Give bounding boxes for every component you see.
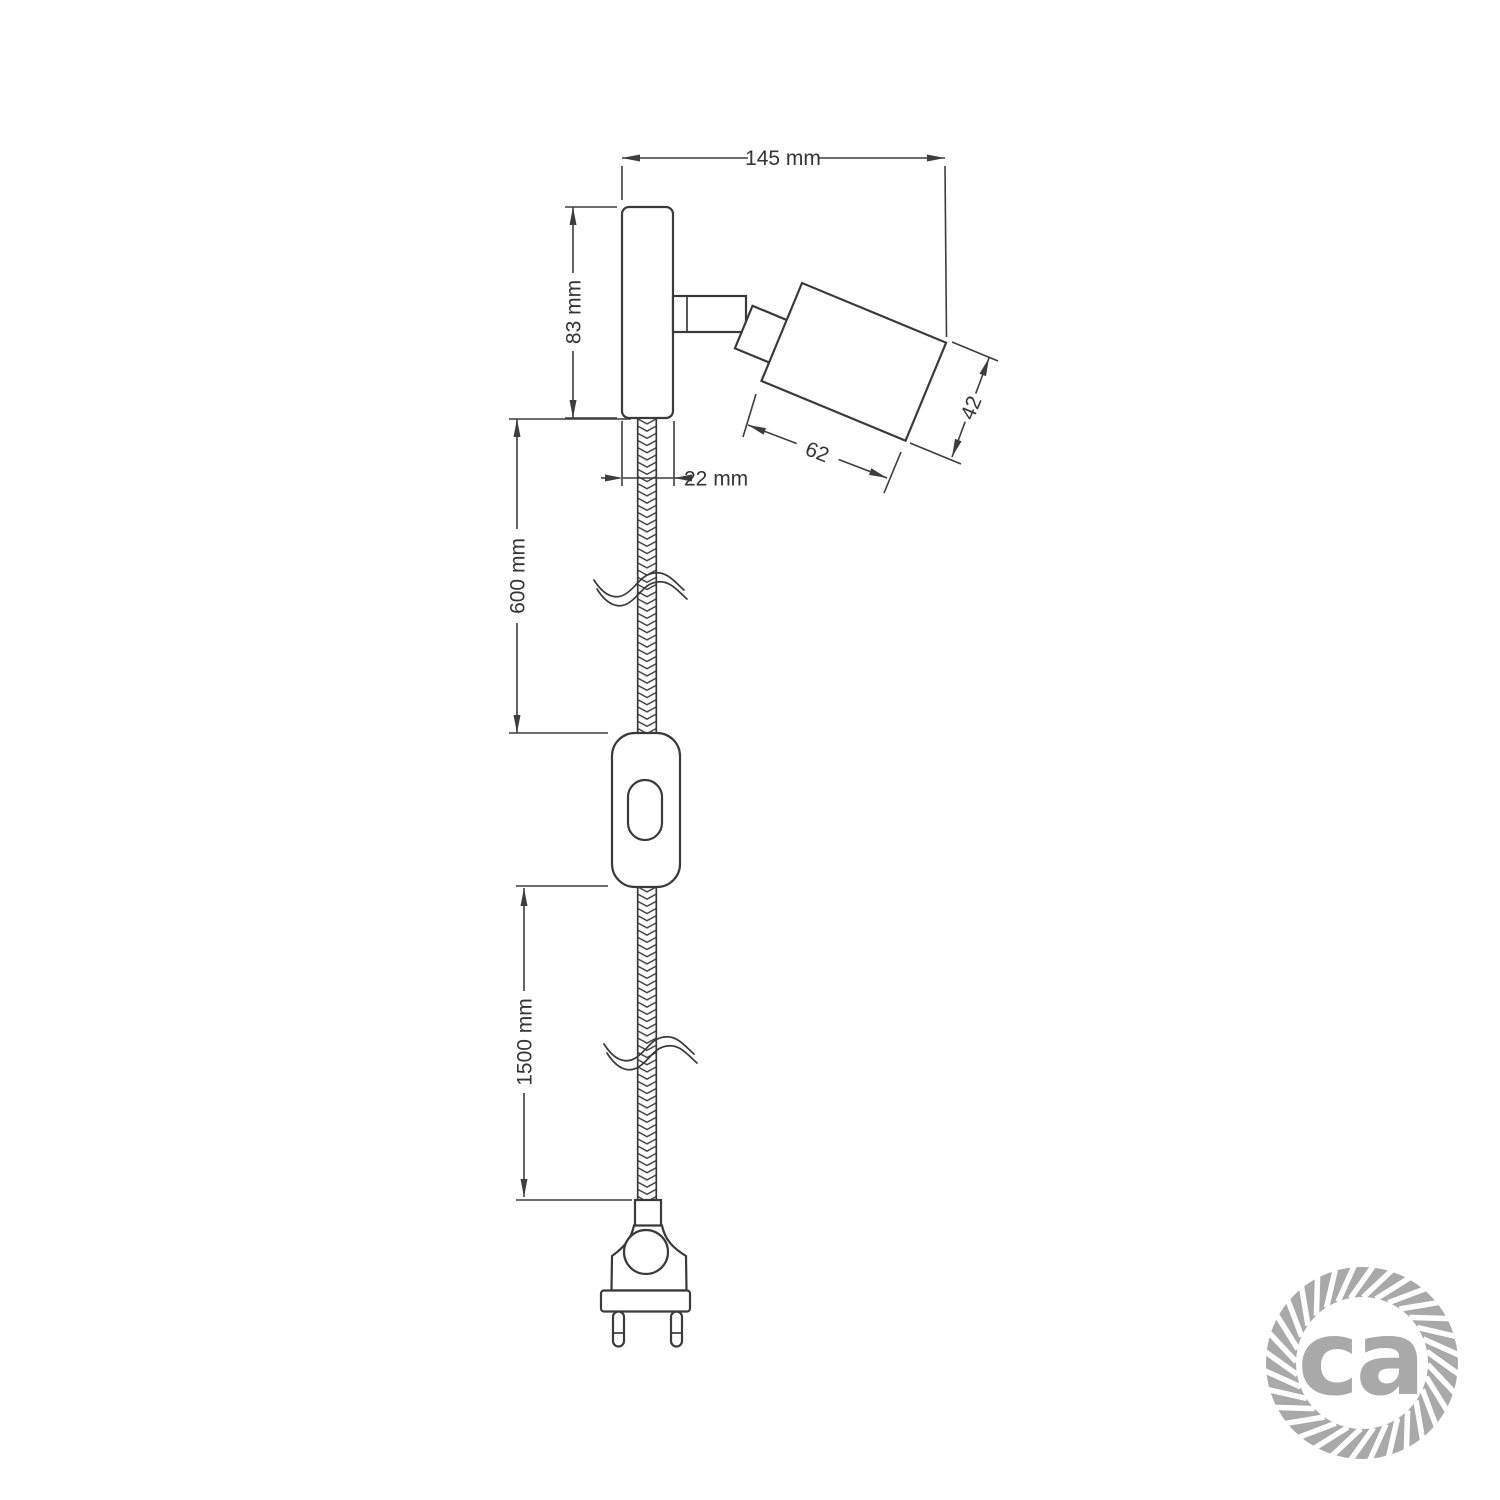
plug-hole	[624, 1230, 668, 1274]
logo-text: ca	[1298, 1299, 1423, 1419]
brand-logo: ca	[1264, 1265, 1459, 1460]
dim-label-22mm: 22 mm	[684, 468, 748, 491]
plug-collar	[601, 1291, 690, 1312]
switch-rocker	[628, 780, 662, 840]
dim-label-600mm: 600 mm	[507, 538, 530, 614]
technical-drawing-page: 145 mm 83 mm 22 mm 62	[0, 0, 1500, 1500]
braided-cable-lower	[638, 887, 657, 1200]
dim-label-62: 62	[802, 438, 832, 468]
wall-plate	[622, 207, 673, 418]
swivel-arm	[673, 296, 746, 332]
dimension-cable-lower: 1500 mm	[514, 886, 633, 1200]
dim-label-1500mm: 1500 mm	[514, 998, 537, 1086]
dimension-bracket-height: 83 mm	[563, 207, 618, 418]
dim-label-83mm: 83 mm	[563, 280, 586, 344]
plug-neck	[635, 1200, 661, 1226]
inline-switch	[612, 733, 680, 887]
euro-plug	[601, 1200, 690, 1347]
head-cylinder	[761, 283, 946, 441]
dim-label-42: 42	[956, 393, 986, 423]
plug-prongs	[613, 1312, 682, 1347]
dimension-bracket-depth: 22 mm	[601, 421, 748, 491]
lamp-dimension-drawing: 145 mm 83 mm 22 mm 62	[0, 0, 1500, 1500]
dimension-cable-upper: 600 mm	[507, 419, 632, 733]
dim-label-145mm: 145 mm	[745, 147, 821, 170]
spotlight-head	[727, 269, 946, 441]
